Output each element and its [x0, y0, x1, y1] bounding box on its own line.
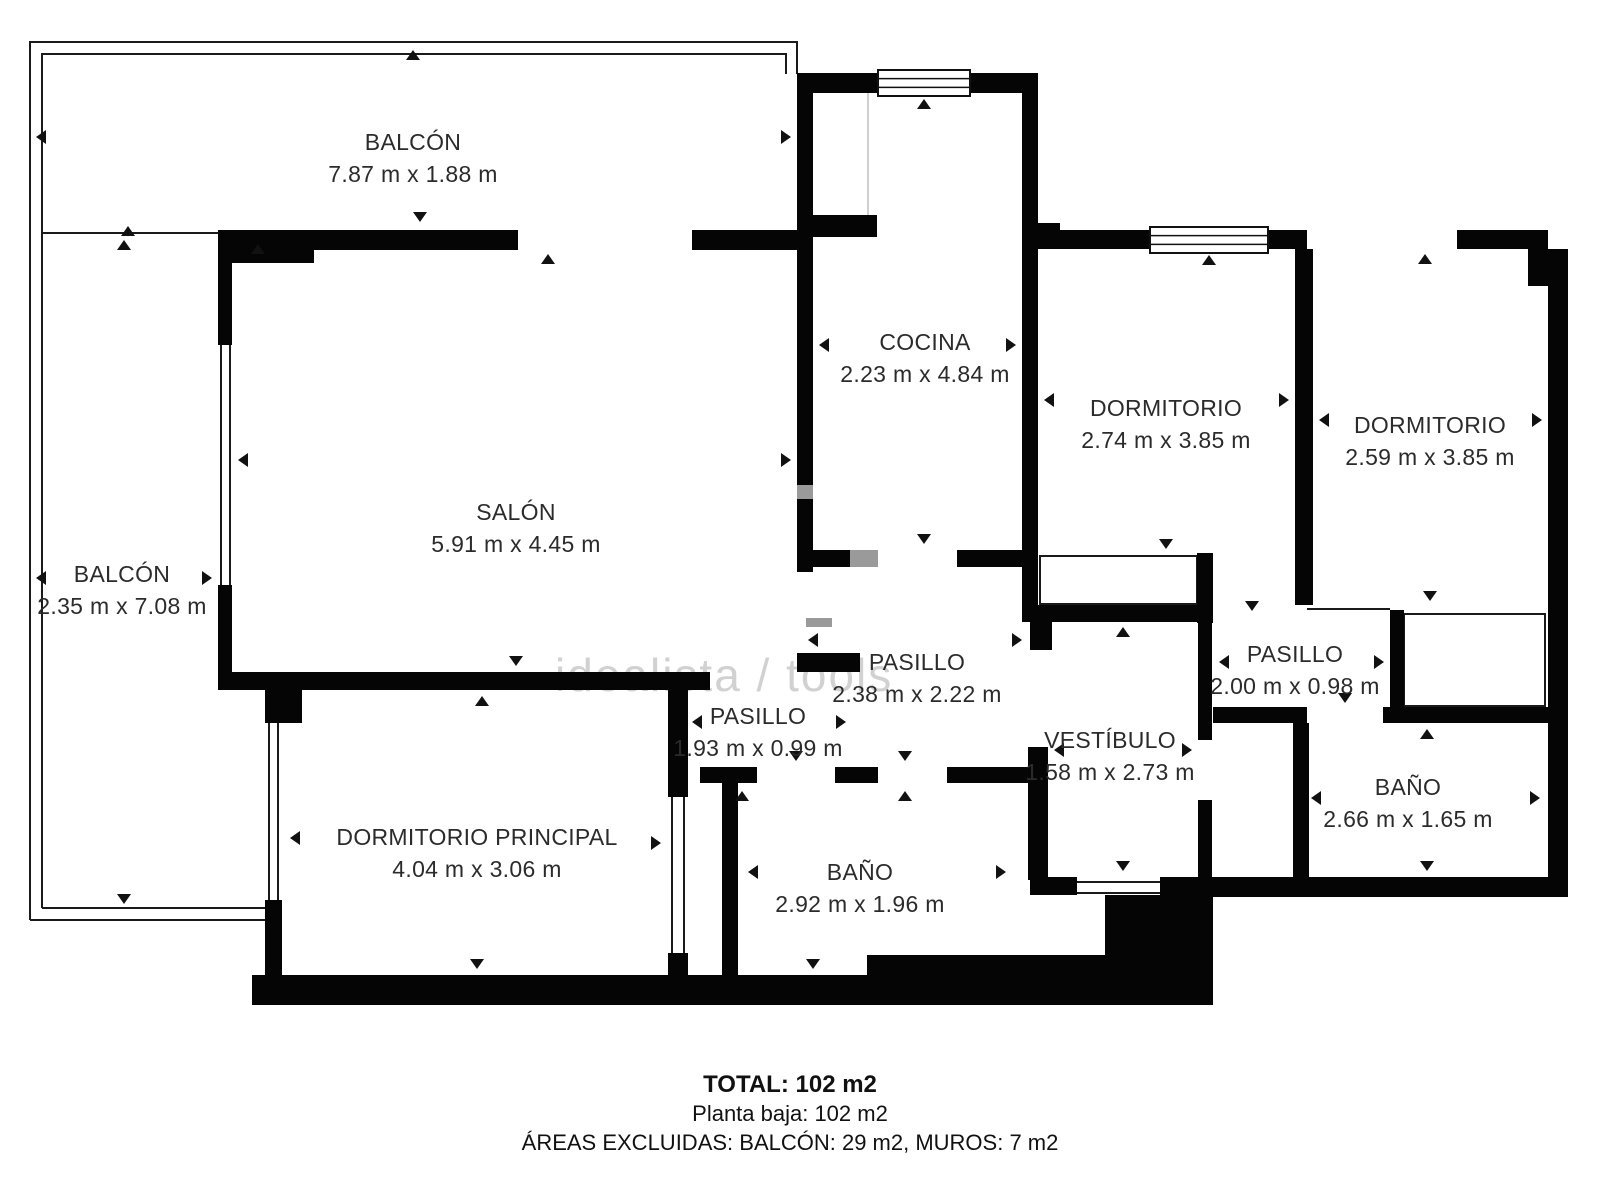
room-label-bano-derecho: BAÑO 2.66 m x 1.65 m — [1323, 771, 1492, 835]
door-direction-arrows — [36, 50, 1542, 969]
room-dims: 5.91 m x 4.45 m — [431, 528, 600, 560]
area-summary: TOTAL: 102 m2 Planta baja: 102 m2 ÁREAS … — [0, 1070, 1580, 1157]
room-name: COCINA — [879, 329, 970, 355]
room-dims: 1.58 m x 2.73 m — [1025, 756, 1194, 788]
window-symbols — [878, 70, 1268, 253]
room-label-bano-central: BAÑO 2.92 m x 1.96 m — [775, 856, 944, 920]
room-label-vestibulo: VESTÍBULO 1.58 m x 2.73 m — [1025, 724, 1194, 788]
room-dims: 2.92 m x 1.96 m — [775, 888, 944, 920]
room-name: DORMITORIO — [1090, 395, 1242, 421]
summary-excluded: ÁREAS EXCLUIDAS: BALCÓN: 29 m2, MUROS: 7… — [0, 1128, 1580, 1157]
room-label-cocina: COCINA 2.23 m x 4.84 m — [840, 326, 1009, 390]
room-name: BAÑO — [827, 859, 893, 885]
room-label-balcon-top: BALCÓN 7.87 m x 1.88 m — [328, 126, 497, 190]
room-label-pasillo-central: PASILLO 2.38 m x 2.22 m — [832, 646, 1001, 710]
room-name: BALCÓN — [74, 561, 170, 587]
room-name: BAÑO — [1375, 774, 1441, 800]
room-name: BALCÓN — [365, 129, 461, 155]
room-label-dormitorio-1: DORMITORIO 2.74 m x 3.85 m — [1081, 392, 1250, 456]
summary-floor: Planta baja: 102 m2 — [0, 1099, 1580, 1128]
room-label-balcon-left: BALCÓN 2.35 m x 7.08 m — [37, 558, 206, 622]
floorplan-page: idealista / tools BALCÓN 7.87 m x 1.88 m… — [0, 0, 1600, 1200]
room-dims: 2.38 m x 2.22 m — [832, 678, 1001, 710]
room-label-salon: SALÓN 5.91 m x 4.45 m — [431, 496, 600, 560]
room-name: PASILLO — [710, 703, 806, 729]
room-dims: 4.04 m x 3.06 m — [336, 853, 617, 885]
room-label-dormitorio-principal: DORMITORIO PRINCIPAL 4.04 m x 3.06 m — [336, 821, 617, 885]
room-name: DORMITORIO PRINCIPAL — [336, 824, 617, 850]
room-name: DORMITORIO — [1354, 412, 1506, 438]
room-name: SALÓN — [476, 499, 555, 525]
summary-total: TOTAL: 102 m2 — [0, 1070, 1580, 1099]
room-name: PASILLO — [1247, 641, 1343, 667]
room-dims: 2.59 m x 3.85 m — [1345, 441, 1514, 473]
room-dims: 2.23 m x 4.84 m — [840, 358, 1009, 390]
floorplan-drawing — [0, 0, 1600, 1200]
room-label-dormitorio-2: DORMITORIO 2.59 m x 3.85 m — [1345, 409, 1514, 473]
room-dims: 7.87 m x 1.88 m — [328, 158, 497, 190]
room-name: VESTÍBULO — [1044, 727, 1176, 753]
room-dims: 2.00 m x 0.98 m — [1210, 670, 1379, 702]
room-name: PASILLO — [869, 649, 965, 675]
room-dims: 2.66 m x 1.65 m — [1323, 803, 1492, 835]
room-dims: 1.93 m x 0.99 m — [673, 732, 842, 764]
room-label-pasillo-derecho: PASILLO 2.00 m x 0.98 m — [1210, 638, 1379, 702]
room-dims: 2.35 m x 7.08 m — [37, 590, 206, 622]
room-dims: 2.74 m x 3.85 m — [1081, 424, 1250, 456]
room-label-pasillo-izquierdo: PASILLO 1.93 m x 0.99 m — [673, 700, 842, 764]
